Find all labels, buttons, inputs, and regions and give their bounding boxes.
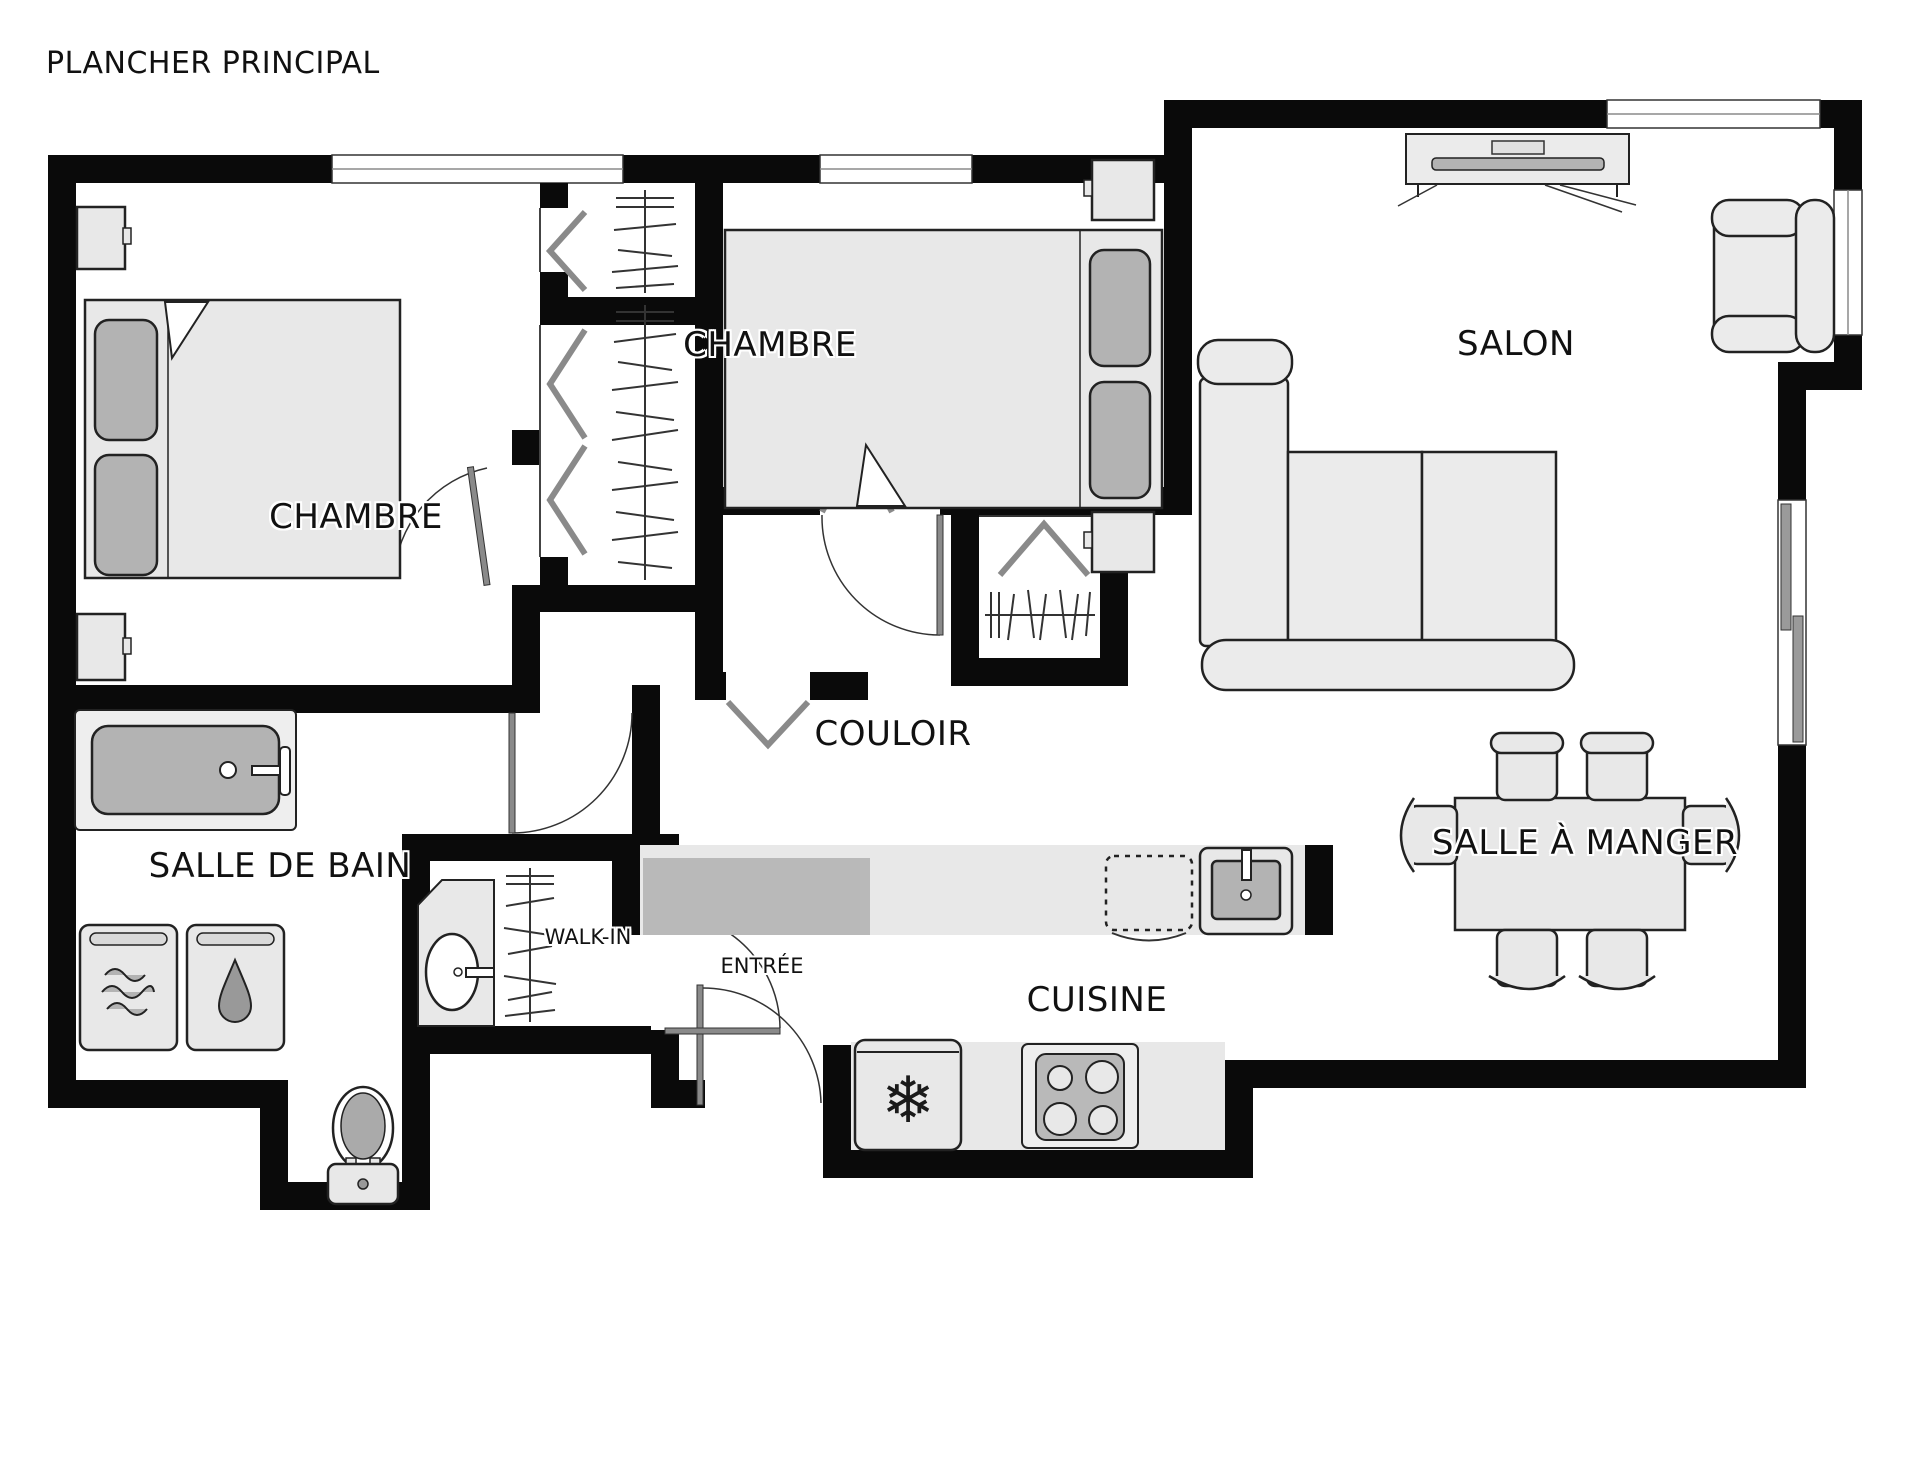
seat-cushion — [1422, 452, 1556, 644]
dining-chair — [1581, 733, 1653, 800]
armchair — [1712, 200, 1834, 352]
wall-right-lower-2 — [1778, 745, 1806, 1088]
burner — [1044, 1103, 1076, 1135]
wall-bed1-jamb — [512, 430, 540, 465]
room-label-hallway: COULOIR — [814, 714, 971, 754]
room-label-kitchen: CUISINE — [1027, 980, 1168, 1020]
room-label-bedroom1: CHAMBRE — [269, 497, 443, 537]
pillow — [95, 455, 157, 575]
closet1-rod — [612, 190, 678, 293]
pillow — [95, 320, 157, 440]
burner — [1048, 1066, 1072, 1090]
kitchen-fixtures: ❄ — [640, 845, 1305, 1150]
wall-kitchen-bottom — [823, 1150, 1253, 1178]
seat-cushion — [1288, 452, 1422, 644]
wall-bed1-east — [512, 585, 540, 713]
sofa-front — [1202, 640, 1574, 690]
wall-top-2 — [623, 155, 820, 183]
wall-right-lower-1 — [1778, 390, 1806, 500]
faucet — [1242, 850, 1251, 880]
nightstand — [1084, 512, 1154, 572]
wall-closet-east — [695, 183, 723, 612]
faucet — [280, 747, 290, 795]
nightstand — [77, 614, 131, 680]
wall-top-3 — [972, 155, 1192, 183]
vanity-sink — [418, 880, 494, 1026]
room-label-walkin: WALK-IN — [545, 925, 632, 949]
kitchen-island — [640, 845, 1305, 941]
wall-bath-bottom — [48, 1080, 288, 1108]
wall-bath-hall — [632, 685, 660, 834]
plan-title: PLANCHER PRINCIPAL — [46, 46, 380, 81]
sectional-sofa — [1198, 340, 1574, 690]
window-bedroom2 — [820, 155, 972, 183]
wall-linen-west — [951, 515, 979, 658]
bathtub — [75, 710, 296, 830]
nightstand — [1084, 160, 1154, 220]
toilet — [328, 1087, 398, 1204]
bifold-closet2b — [550, 446, 585, 554]
wall-bath-north — [48, 685, 512, 713]
dining-chair — [1489, 930, 1565, 989]
window-salon-right — [1834, 190, 1862, 335]
wall-walkin-east-2 — [651, 1030, 679, 1108]
pillow — [1090, 250, 1150, 366]
room-label-entry: ENTRÉE — [721, 954, 804, 978]
wall-closet-east-ext — [695, 612, 723, 700]
dining-table — [1455, 798, 1685, 930]
floor-plan: ❄ — [0, 0, 1920, 1483]
tv-screen — [1432, 158, 1604, 170]
room-label-bedroom2: CHAMBRE — [683, 325, 857, 365]
chair-back — [1796, 200, 1834, 352]
tv-base — [1492, 141, 1544, 154]
bifold-hall-closet — [728, 702, 808, 745]
bed-bedroom2 — [725, 230, 1162, 508]
window-dining-sliding — [1778, 500, 1806, 745]
door-entry — [697, 985, 821, 1105]
armrest — [1198, 340, 1292, 384]
bedroom1-furniture — [77, 207, 400, 680]
kitchen-lower-counter: ❄ — [851, 1040, 1225, 1150]
door-bathroom — [509, 713, 632, 833]
wall-dining-bottom — [1225, 1060, 1806, 1088]
burner — [1086, 1061, 1118, 1093]
room-label-living: SALON — [1457, 324, 1575, 364]
pillow — [1090, 382, 1150, 498]
linen-rod — [985, 590, 1095, 640]
wall-hall-closet-a — [723, 672, 726, 700]
bifold-closet2a — [550, 330, 585, 438]
wall-walkin-bottom — [402, 1026, 651, 1054]
island-counter-dark — [643, 858, 870, 935]
washer — [80, 925, 177, 1050]
chaise — [1200, 378, 1288, 646]
kitchen-sink — [1200, 848, 1292, 934]
bifold-linen-closet — [1000, 524, 1088, 575]
wall-bed2-salon — [1164, 183, 1192, 515]
wall-top-1 — [48, 155, 332, 183]
tv-console — [1398, 134, 1636, 212]
burner — [1089, 1106, 1117, 1134]
wall-closet-w2 — [540, 272, 568, 297]
closet2-rod — [612, 305, 678, 580]
armrest — [1712, 316, 1804, 352]
dining-chair — [1579, 930, 1655, 989]
snowflake-icon: ❄ — [881, 1064, 935, 1138]
wall-closet-w3 — [540, 557, 568, 585]
wall-closet-w1 — [540, 183, 568, 208]
wall-island-east — [1305, 845, 1333, 935]
room-label-dining: SALLE À MANGER — [1432, 823, 1738, 863]
dining-chair — [1491, 733, 1563, 800]
dryer — [187, 925, 284, 1050]
wall-right-step — [1778, 362, 1862, 390]
salon-furniture — [1198, 134, 1834, 690]
stove — [1022, 1044, 1138, 1148]
wall-linen-bottom — [951, 658, 1128, 686]
wall-island-west — [612, 845, 640, 935]
wall-hall-closet-b — [810, 672, 868, 700]
window-bedroom1 — [332, 155, 623, 183]
refrigerator: ❄ — [855, 1040, 961, 1150]
nightstand — [77, 207, 131, 269]
window-salon-top — [1607, 100, 1820, 128]
room-label-bathroom: SALLE DE BAIN — [149, 846, 412, 886]
drain — [220, 762, 236, 778]
armrest — [1712, 200, 1804, 236]
wall-kitchen-left — [823, 1045, 851, 1178]
wall-left — [48, 155, 76, 1108]
wall-right-upper-1 — [1834, 100, 1862, 190]
faucet — [466, 968, 494, 977]
wall-salon-top-1 — [1164, 100, 1607, 128]
door-bedroom2 — [822, 515, 943, 635]
